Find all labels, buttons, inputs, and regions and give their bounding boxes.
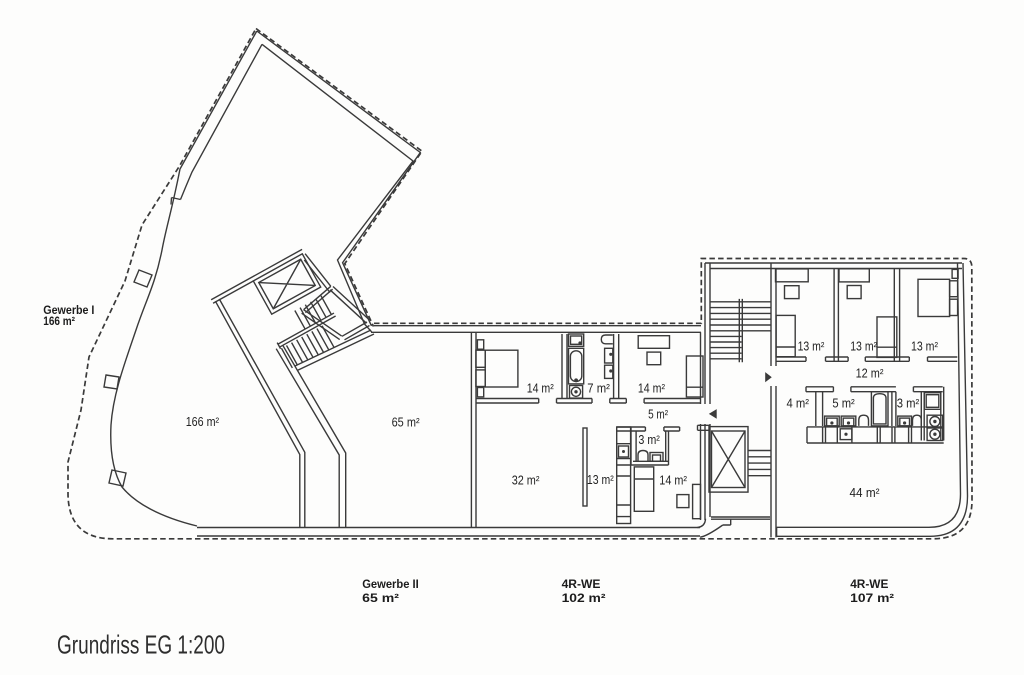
svg-text:4R-WE: 4R-WE <box>562 577 601 591</box>
svg-text:32 m²: 32 m² <box>512 474 540 488</box>
svg-text:65 m²: 65 m² <box>392 416 420 430</box>
svg-text:14 m²: 14 m² <box>527 382 554 396</box>
svg-text:5 m²: 5 m² <box>648 407 668 421</box>
svg-text:102 m²: 102 m² <box>562 591 606 605</box>
svg-text:44 m²: 44 m² <box>850 486 880 500</box>
svg-text:12 m²: 12 m² <box>856 366 884 380</box>
svg-text:Gewerbe II: Gewerbe II <box>362 577 419 591</box>
svg-text:13 m²: 13 m² <box>587 473 614 487</box>
svg-text:166 m²: 166 m² <box>186 415 219 429</box>
svg-text:166 m²: 166 m² <box>43 314 75 328</box>
svg-text:13 m²: 13 m² <box>911 340 938 354</box>
svg-text:7 m²: 7 m² <box>587 382 610 396</box>
svg-text:65 m²: 65 m² <box>362 591 399 605</box>
svg-text:3 m²: 3 m² <box>897 396 920 410</box>
svg-text:14 m²: 14 m² <box>638 382 665 396</box>
svg-text:107 m²: 107 m² <box>850 591 894 605</box>
svg-text:13 m²: 13 m² <box>798 340 825 354</box>
svg-text:3 m²: 3 m² <box>638 433 660 447</box>
svg-text:Grundriss EG 1:200: Grundriss EG 1:200 <box>57 630 225 660</box>
svg-text:13 m²: 13 m² <box>850 340 877 354</box>
svg-text:4 m²: 4 m² <box>787 396 810 410</box>
svg-text:5 m²: 5 m² <box>832 396 854 410</box>
svg-text:14 m²: 14 m² <box>659 473 687 487</box>
svg-text:4R-WE: 4R-WE <box>850 577 888 591</box>
